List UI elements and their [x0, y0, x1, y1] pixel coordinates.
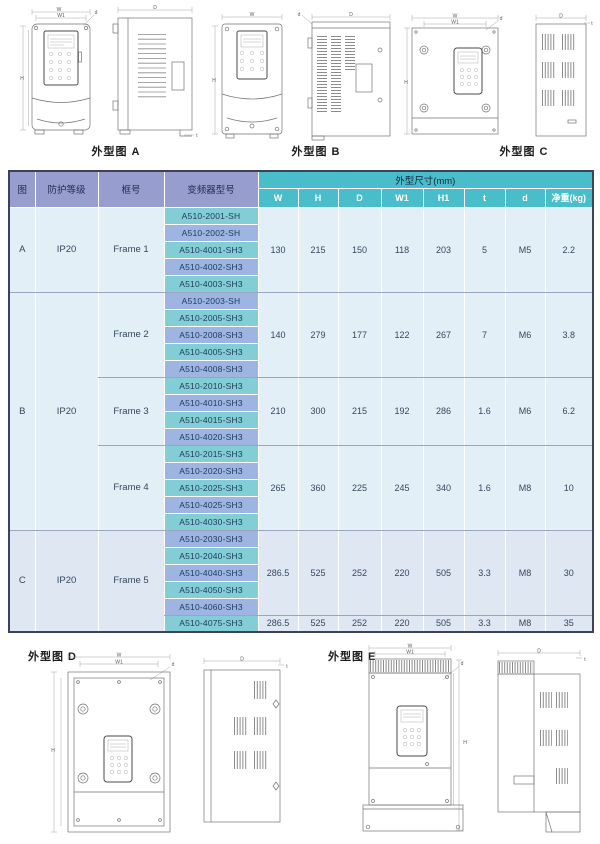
- cell-value-d-hole: M6: [505, 292, 545, 377]
- dim-label-depth: D: [153, 5, 157, 11]
- cell-value-h1: 286: [423, 377, 464, 445]
- cell-value-w1: 192: [381, 377, 423, 445]
- dim-label-d: d: [298, 12, 301, 18]
- figure-d-side-drawing: D t: [196, 656, 290, 832]
- cell-model: A510-4020-SH3: [164, 428, 258, 445]
- cell-value-h: 279: [298, 292, 338, 377]
- cell-model: A510-2015-SH3: [164, 445, 258, 462]
- cell-value-h1: 505: [423, 615, 464, 632]
- cell-frame: Frame 3: [98, 377, 164, 445]
- cell-value-net-weight: 3.8: [545, 292, 593, 377]
- dim-label-depth: D: [349, 12, 353, 18]
- cell-model: A510-4005-SH3: [164, 343, 258, 360]
- figure-c-front-drawing: W W1 H d: [404, 14, 506, 140]
- table-row: BIP20Frame 2A510-2003-SH1402791771222677…: [9, 292, 593, 309]
- dim-label-d: d: [461, 661, 464, 667]
- dim-label-w: W: [250, 12, 255, 18]
- cell-model: A510-2002-SH: [164, 224, 258, 241]
- cell-model: A510-2003-SH: [164, 292, 258, 309]
- cell-value-t: 5: [464, 207, 505, 292]
- cell-value-w1: 118: [381, 207, 423, 292]
- dim-label-d: d: [500, 16, 503, 22]
- table-row: CIP20Frame 5A510-2030-SH3286.55252522205…: [9, 530, 593, 547]
- cell-value-d-depth: 225: [338, 445, 381, 530]
- cell-value-d-hole: M8: [505, 445, 545, 530]
- cell-value-w: 210: [258, 377, 298, 445]
- figure-c-side-drawing: D t: [528, 14, 594, 140]
- cell-model: A510-4040-SH3: [164, 564, 258, 581]
- dim-label-h: H: [51, 748, 55, 754]
- cell-frame: Frame 2: [98, 292, 164, 377]
- cell-model: A510-2001-SH: [164, 207, 258, 224]
- cell-value-net-weight: 30: [545, 530, 593, 615]
- cell-value-net-weight: 6.2: [545, 377, 593, 445]
- cell-value-h1: 267: [423, 292, 464, 377]
- cell-value-h1: 505: [423, 530, 464, 615]
- col-header-h: H: [298, 188, 338, 207]
- dim-label-w1: W1: [115, 660, 123, 666]
- figure-b-side-drawing: D d: [296, 12, 398, 142]
- cell-value-w: 286.5: [258, 530, 298, 615]
- col-header-d-hole: d: [505, 188, 545, 207]
- cell-model: A510-2020-SH3: [164, 462, 258, 479]
- cell-model: A510-4030-SH3: [164, 513, 258, 530]
- figure-d-front-drawing: W W1 H d: [50, 652, 184, 838]
- dim-label-depth: D: [537, 649, 541, 655]
- cell-model: A510-4003-SH3: [164, 275, 258, 292]
- dim-label-h: H: [463, 740, 467, 746]
- col-header-dimensions-group: 外型尺寸(mm): [258, 171, 593, 188]
- figure-a-label: 外型图 A: [86, 143, 146, 159]
- col-header-frame: 框号: [98, 171, 164, 207]
- cell-model: A510-4015-SH3: [164, 411, 258, 428]
- cell-value-t: 3.3: [464, 615, 505, 632]
- col-header-protection: 防护等级: [35, 171, 98, 207]
- cell-value-h: 525: [298, 530, 338, 615]
- dim-label-h: H: [404, 80, 408, 86]
- cell-model: A510-4001-SH3: [164, 241, 258, 258]
- cell-value-d-hole: M8: [505, 615, 545, 632]
- cell-value-w1: 122: [381, 292, 423, 377]
- dimensions-table: 图 防护等级 框号 变频器型号 外型尺寸(mm) WHDW1H1td净重(kg)…: [8, 170, 594, 633]
- cell-model: A510-2010-SH3: [164, 377, 258, 394]
- cell-value-w: 130: [258, 207, 298, 292]
- col-header-net-weight: 净重(kg): [545, 188, 593, 207]
- cell-model: A510-4050-SH3: [164, 581, 258, 598]
- col-header-d-depth: D: [338, 188, 381, 207]
- cell-value-d-hole: M8: [505, 530, 545, 615]
- cell-protection: IP20: [35, 292, 98, 530]
- table-row: AIP20Frame 1A510-2001-SH1302151501182035…: [9, 207, 593, 224]
- cell-value-net-weight: 10: [545, 445, 593, 530]
- cell-model: A510-2025-SH3: [164, 479, 258, 496]
- dim-label-d: d: [95, 10, 98, 16]
- cell-value-t: 1.6: [464, 445, 505, 530]
- figure-a-side-drawing: D t: [108, 4, 200, 140]
- dim-label-w1: W1: [57, 13, 65, 19]
- dim-label-depth: D: [559, 14, 563, 20]
- cell-value-h: 360: [298, 445, 338, 530]
- figure-e-front-drawing: W W1 H d: [355, 644, 473, 840]
- cell-value-net-weight: 2.2: [545, 207, 593, 292]
- cell-frame: Frame 5: [98, 530, 164, 632]
- cell-model: A510-4002-SH3: [164, 258, 258, 275]
- cell-value-w1: 220: [381, 530, 423, 615]
- cell-model: A510-2030-SH3: [164, 530, 258, 547]
- cell-value-d-depth: 252: [338, 615, 381, 632]
- cell-value-t: 3.3: [464, 530, 505, 615]
- cell-model: A510-4075-SH3: [164, 615, 258, 632]
- cell-value-h1: 203: [423, 207, 464, 292]
- dim-label-t: t: [584, 657, 586, 663]
- cell-value-d-depth: 150: [338, 207, 381, 292]
- cell-model: A510-2005-SH3: [164, 309, 258, 326]
- dim-label-d: d: [172, 662, 175, 668]
- dim-label-h: H: [20, 76, 24, 82]
- cell-protection: IP20: [35, 530, 98, 632]
- dim-label-w1: W1: [451, 20, 459, 26]
- cell-value-w: 286.5: [258, 615, 298, 632]
- table-header: 图 防护等级 框号 变频器型号 外型尺寸(mm) WHDW1H1td净重(kg): [9, 171, 593, 207]
- dim-label-t: t: [286, 664, 288, 670]
- cell-value-w: 140: [258, 292, 298, 377]
- cell-value-d-hole: M5: [505, 207, 545, 292]
- cell-value-t: 7: [464, 292, 505, 377]
- cell-protection: IP20: [35, 207, 98, 292]
- cell-model: A510-4025-SH3: [164, 496, 258, 513]
- dim-label-depth: D: [240, 657, 244, 663]
- figure-e-side-drawing: D t: [492, 648, 588, 838]
- cell-value-w1: 220: [381, 615, 423, 632]
- cell-value-d-depth: 215: [338, 377, 381, 445]
- dim-label-t: t: [591, 21, 593, 27]
- cell-model: A510-4008-SH3: [164, 360, 258, 377]
- cell-figure: B: [9, 292, 35, 530]
- col-header-h1: H1: [423, 188, 464, 207]
- cell-value-net-weight: 35: [545, 615, 593, 632]
- cell-value-h: 525: [298, 615, 338, 632]
- cell-value-w: 265: [258, 445, 298, 530]
- figure-a-front-drawing: W W1 H d: [20, 6, 98, 140]
- cell-model: A510-4060-SH3: [164, 598, 258, 615]
- col-header-model: 变频器型号: [164, 171, 258, 207]
- cell-model: A510-4010-SH3: [164, 394, 258, 411]
- cell-model: A510-2008-SH3: [164, 326, 258, 343]
- figure-c-label: 外型图 C: [494, 143, 554, 159]
- cell-value-t: 1.6: [464, 377, 505, 445]
- cell-value-h: 300: [298, 377, 338, 445]
- cell-value-d-depth: 252: [338, 530, 381, 615]
- cell-value-h: 215: [298, 207, 338, 292]
- cell-frame: Frame 1: [98, 207, 164, 292]
- cell-model: A510-2040-SH3: [164, 547, 258, 564]
- dim-label-t: t: [196, 133, 198, 139]
- cell-figure: A: [9, 207, 35, 292]
- col-header-w1: W1: [381, 188, 423, 207]
- figure-b-front-drawing: W H: [212, 12, 292, 142]
- document-page: W W1 H d D t: [0, 0, 600, 844]
- col-header-t: t: [464, 188, 505, 207]
- cell-figure: C: [9, 530, 35, 632]
- col-header-w: W: [258, 188, 298, 207]
- table-body: AIP20Frame 1A510-2001-SH1302151501182035…: [9, 207, 593, 632]
- col-header-figure: 图: [9, 171, 35, 207]
- cell-value-d-hole: M6: [505, 377, 545, 445]
- dim-label-w1: W1: [406, 650, 414, 656]
- figure-b-label: 外型图 B: [286, 143, 346, 159]
- cell-value-h1: 340: [423, 445, 464, 530]
- dim-label-h: H: [212, 78, 216, 84]
- cell-value-w1: 245: [381, 445, 423, 530]
- cell-frame: Frame 4: [98, 445, 164, 530]
- dim-label-w: W: [117, 653, 122, 659]
- cell-value-d-depth: 177: [338, 292, 381, 377]
